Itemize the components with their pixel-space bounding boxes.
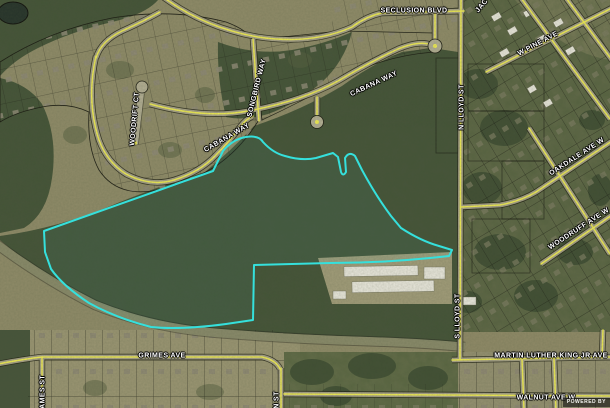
map-canvas[interactable]: SECLUSION BLVD N LLOYD ST W PINE AVE OAK… [0, 0, 610, 408]
powered-by-watermark: POWERED BY [563, 398, 610, 407]
aerial-basemap [0, 0, 610, 408]
